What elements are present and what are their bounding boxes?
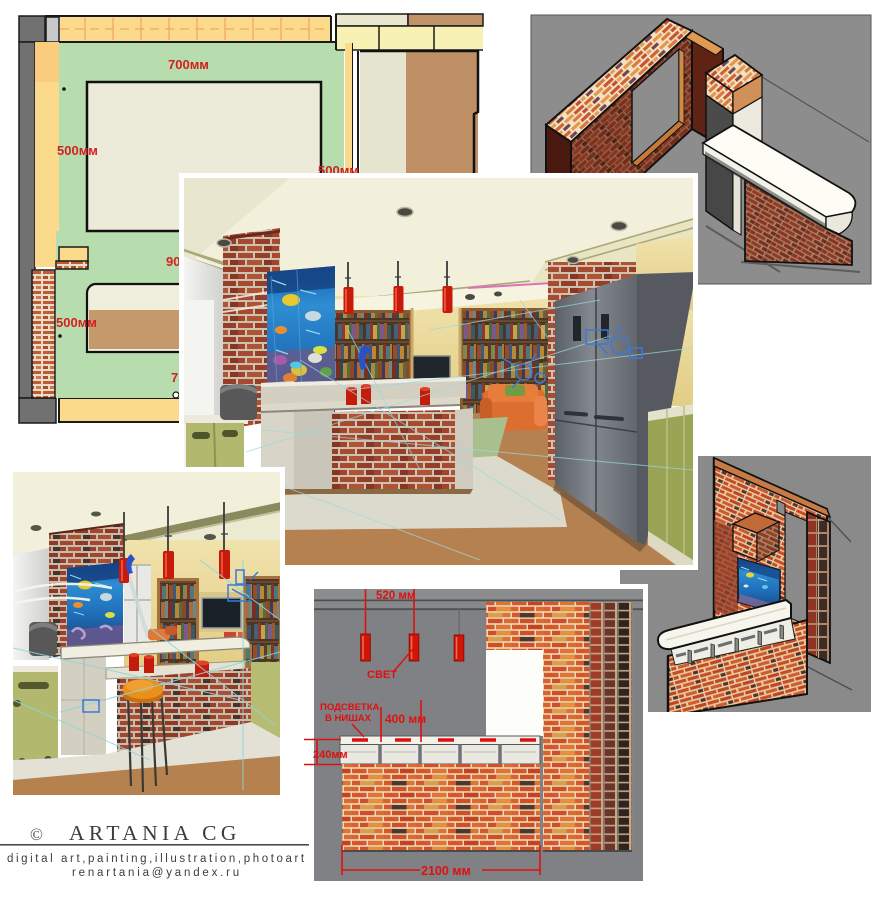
svg-text:700мм: 700мм: [168, 57, 209, 72]
svg-text:ПОДСВЕТКА: ПОДСВЕТКА: [320, 702, 380, 713]
svg-text:В НИШАХ: В НИШАХ: [325, 713, 372, 724]
svg-text:400 мм: 400 мм: [385, 712, 426, 726]
svg-text:ARTANIA CG: ARTANIA CG: [69, 821, 241, 845]
svg-text:digital art,painting,illustrat: digital art,painting,illustration,photoa…: [7, 853, 307, 865]
svg-text:СВЕТ: СВЕТ: [367, 669, 397, 681]
svg-text:240мм: 240мм: [313, 749, 348, 761]
svg-text:500мм: 500мм: [57, 143, 98, 158]
svg-text:520 мм: 520 мм: [376, 590, 415, 602]
svg-text:2100 мм: 2100 мм: [421, 864, 471, 878]
svg-text:500мм: 500мм: [56, 315, 97, 330]
svg-text:renartania@yandex.ru: renartania@yandex.ru: [72, 867, 242, 879]
svg-text:©: ©: [30, 825, 43, 844]
